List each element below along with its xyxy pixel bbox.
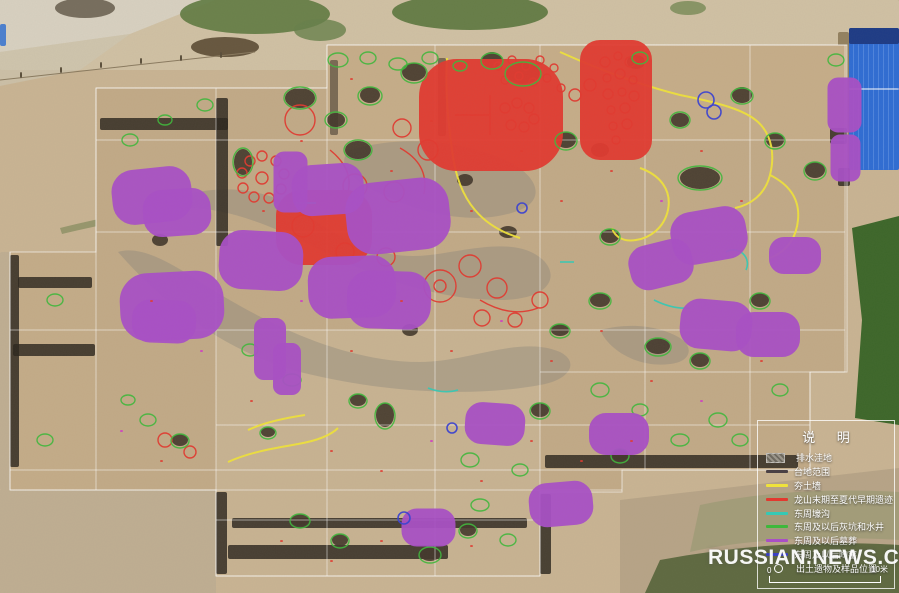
legend-item-label: 龙山末期至夏代早期遗迹 — [794, 493, 893, 506]
legend-item-label: 夯土墙 — [794, 479, 821, 492]
legend-item-2: 夯土墙 — [766, 479, 894, 493]
legend-item-label: 台地范围 — [794, 465, 830, 478]
line-swatch — [766, 470, 788, 473]
legend-item-1: 台地范围 — [766, 465, 894, 479]
line-swatch — [766, 525, 788, 528]
scale-bar — [769, 576, 881, 583]
legend-item-4: 东周壕沟 — [766, 506, 894, 520]
legend-item-0: 排水洼地 — [766, 451, 894, 465]
line-swatch — [766, 512, 788, 515]
legend-item-label: 东周及以后灰坑和水井 — [794, 520, 884, 533]
legend-item-5: 东周及以后灰坑和水井 — [766, 520, 894, 534]
legend-item-label: 东周壕沟 — [794, 507, 830, 520]
hatch-swatch — [766, 453, 785, 463]
line-swatch — [766, 484, 788, 487]
line-swatch — [766, 539, 788, 542]
legend-item-3: 龙山末期至夏代早期遗迹 — [766, 492, 894, 506]
line-swatch — [766, 498, 788, 501]
legend-title: 说 明 — [758, 427, 894, 446]
legend-item-label: 排水洼地 — [796, 451, 832, 464]
watermark-text: RUSSIAN.NEWS.CN — [708, 546, 899, 570]
aerial-photo-canvas: 说 明 排水洼地台地范围夯土墙龙山末期至夏代早期遗迹东周壕沟东周及以后灰坑和水井… — [0, 0, 899, 593]
